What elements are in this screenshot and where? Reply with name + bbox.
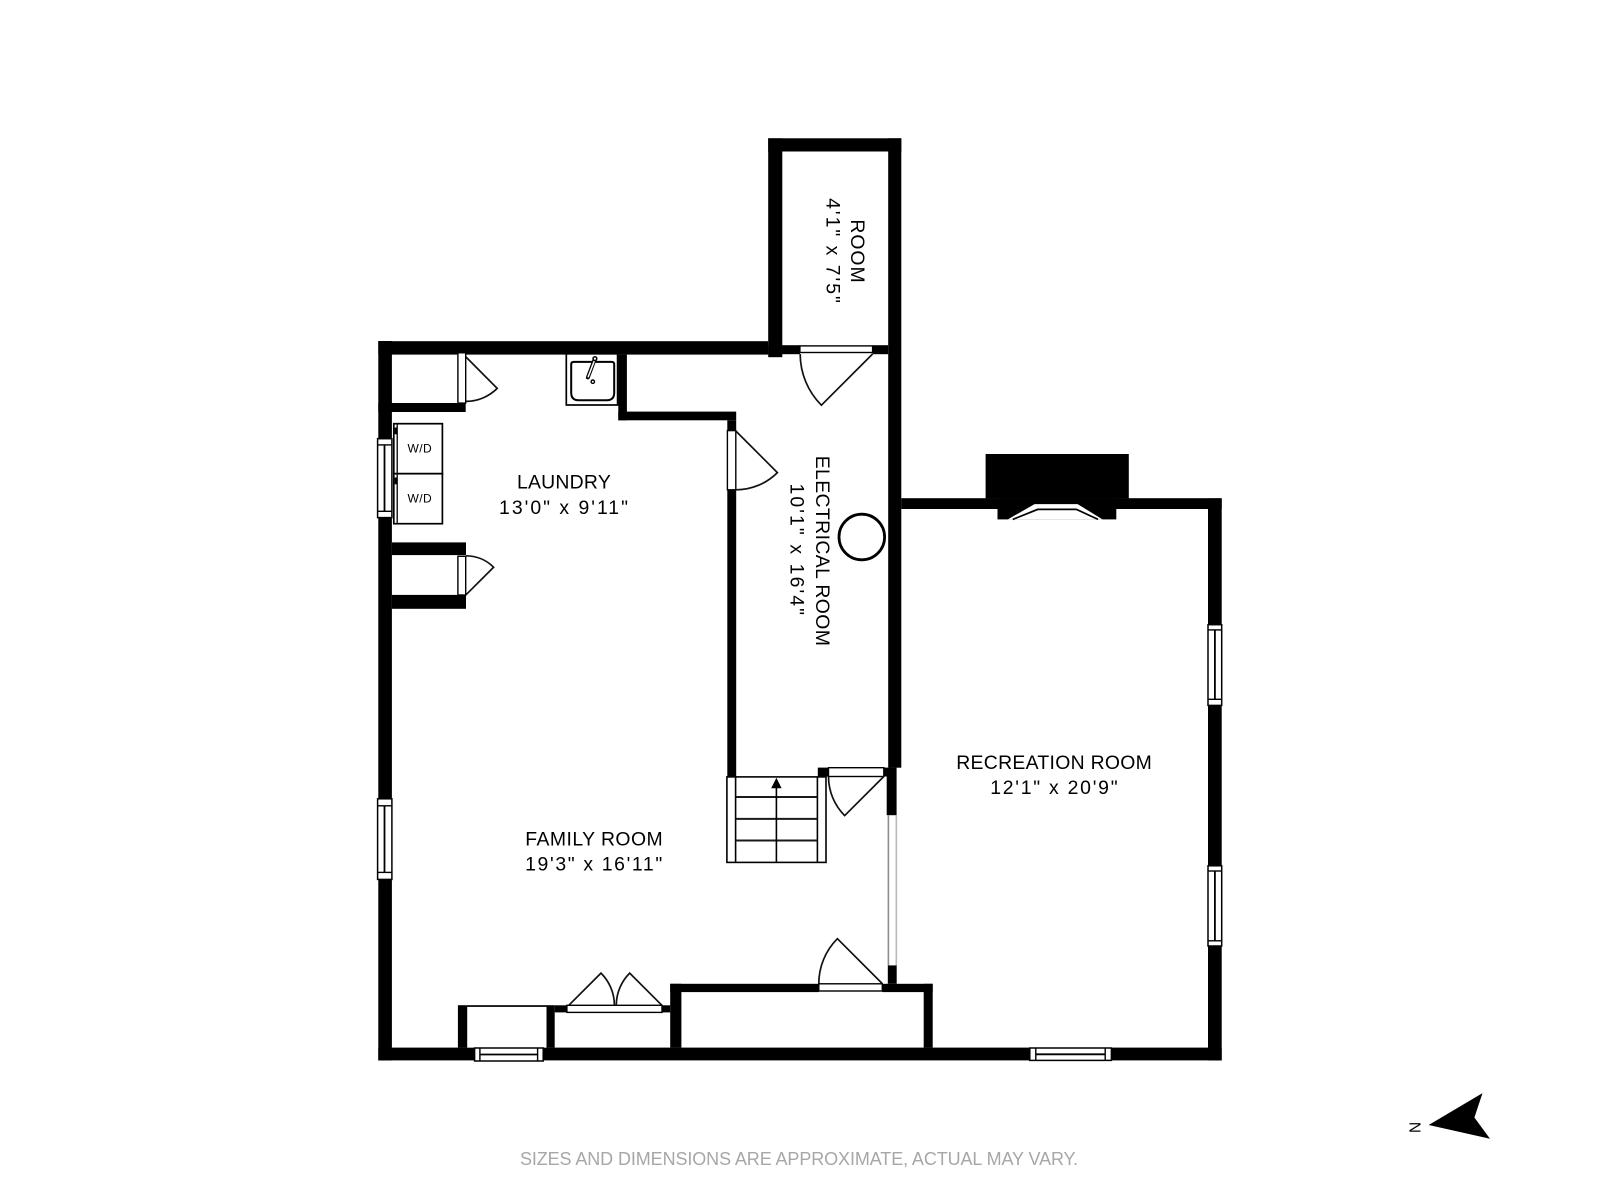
svg-text:10'1" x 16'4": 10'1" x 16'4"	[786, 483, 808, 617]
svg-text:RECREATION ROOM: RECREATION ROOM	[956, 752, 1152, 774]
svg-text:4'1" x 7'5": 4'1" x 7'5"	[822, 198, 844, 305]
svg-text:FAMILY ROOM: FAMILY ROOM	[525, 829, 663, 851]
svg-text:W/D: W/D	[408, 441, 433, 455]
svg-text:19'3" x 16'11": 19'3" x 16'11"	[525, 854, 664, 876]
svg-text:W/D: W/D	[408, 491, 433, 505]
svg-text:SIZES AND DIMENSIONS ARE APPRO: SIZES AND DIMENSIONS ARE APPROXIMATE, AC…	[520, 1149, 1078, 1169]
svg-text:ROOM: ROOM	[846, 219, 868, 283]
svg-text:N: N	[1405, 1122, 1422, 1133]
svg-text:13'0" x 9'11": 13'0" x 9'11"	[499, 497, 630, 519]
svg-text:ELECTRICAL ROOM: ELECTRICAL ROOM	[811, 456, 833, 647]
svg-text:12'1" x 20'9": 12'1" x 20'9"	[990, 777, 1119, 799]
svg-text:LAUNDRY: LAUNDRY	[517, 472, 611, 494]
